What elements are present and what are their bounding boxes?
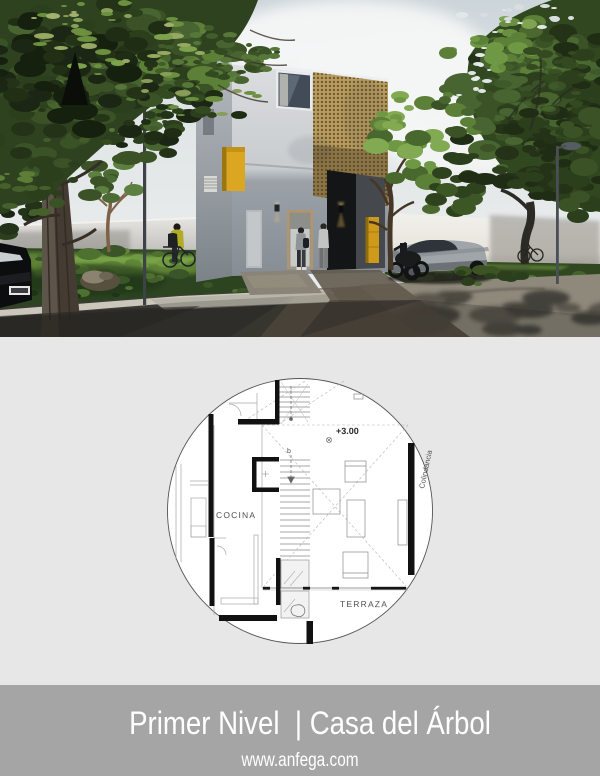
svg-text:b: b	[287, 447, 291, 455]
svg-text:COCINA: COCINA	[216, 510, 256, 520]
svg-text:+3.00: +3.00	[336, 426, 359, 436]
svg-text:TERRAZA: TERRAZA	[340, 599, 388, 609]
